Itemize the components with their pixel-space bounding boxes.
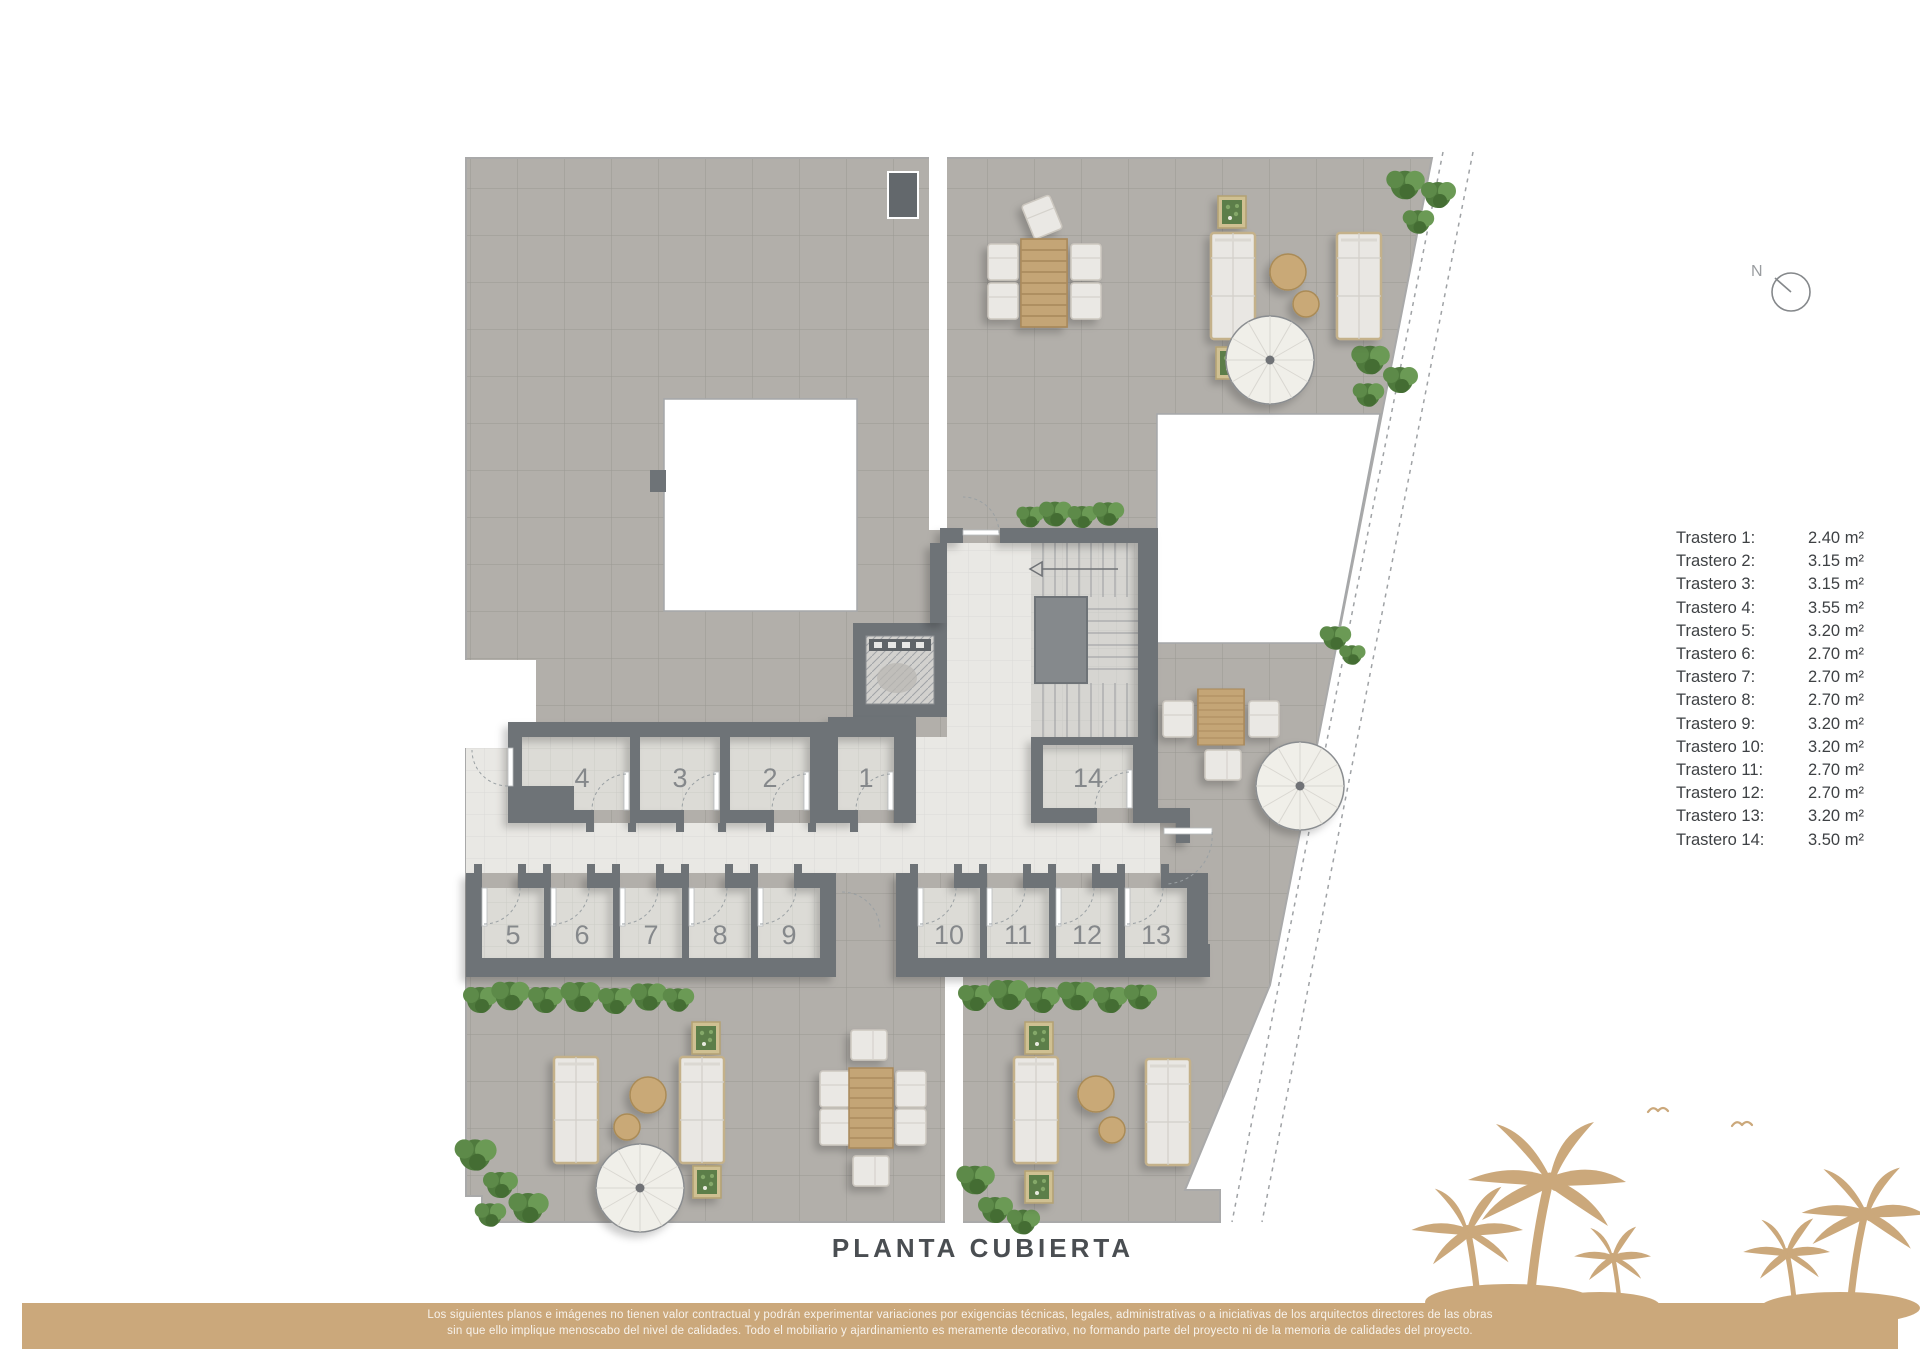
legend-row: Trastero 5:3.20 m² bbox=[1676, 620, 1916, 643]
legend-row: Trastero 9:3.20 m² bbox=[1676, 713, 1916, 736]
legend-value: 3.20 m² bbox=[1808, 736, 1908, 759]
room-label-10: 10 bbox=[934, 920, 964, 950]
elevator bbox=[853, 623, 947, 717]
disclaimer-line-1: Los siguientes planos e imágenes no tien… bbox=[22, 1309, 1898, 1321]
palm-tree-icon bbox=[1411, 1122, 1660, 1320]
bird-icon bbox=[1732, 1122, 1752, 1126]
legend-label: Trastero 14: bbox=[1676, 829, 1808, 852]
parasol-icon bbox=[1256, 742, 1344, 830]
room-label-7: 7 bbox=[643, 920, 658, 950]
legend-row: Trastero 1:2.40 m² bbox=[1676, 527, 1916, 550]
room-label-4: 4 bbox=[574, 763, 589, 793]
legend-label: Trastero 4: bbox=[1676, 597, 1808, 620]
legend-row: Trastero 12:2.70 m² bbox=[1676, 782, 1916, 805]
roof-void-right bbox=[1157, 414, 1380, 643]
room-label-14: 14 bbox=[1073, 763, 1103, 793]
legend-row: Trastero 14:3.50 m² bbox=[1676, 829, 1916, 852]
legend-value: 3.15 m² bbox=[1808, 550, 1908, 573]
legend-row: Trastero 2:3.15 m² bbox=[1676, 550, 1916, 573]
legend-value: 3.20 m² bbox=[1808, 620, 1908, 643]
legend-label: Trastero 7: bbox=[1676, 666, 1808, 689]
legend-label: Trastero 12: bbox=[1676, 782, 1808, 805]
legend-label: Trastero 8: bbox=[1676, 689, 1808, 712]
disclaimer-line-2: sin que ello implique menoscabo del nive… bbox=[22, 1325, 1898, 1337]
legend-row: Trastero 8:2.70 m² bbox=[1676, 689, 1916, 712]
page-title: PLANTA CUBIERTA bbox=[683, 1233, 1283, 1264]
room-label-5: 5 bbox=[505, 920, 520, 950]
legend-label: Trastero 5: bbox=[1676, 620, 1808, 643]
stair-void bbox=[1035, 597, 1087, 683]
legend-label: Trastero 9: bbox=[1676, 713, 1808, 736]
legend-value: 2.70 m² bbox=[1808, 643, 1908, 666]
palm-tree-icon bbox=[1743, 1168, 1920, 1324]
legend-row: Trastero 13:3.20 m² bbox=[1676, 805, 1916, 828]
legend-storage-areas: Trastero 1:2.40 m² Trastero 2:3.15 m² Tr… bbox=[1676, 527, 1916, 852]
legend-row: Trastero 7:2.70 m² bbox=[1676, 666, 1916, 689]
north-arrow-icon bbox=[1745, 255, 1825, 325]
legend-value: 3.20 m² bbox=[1808, 713, 1908, 736]
legend-label: Trastero 10: bbox=[1676, 736, 1808, 759]
legend-value: 3.15 m² bbox=[1808, 573, 1908, 596]
parasol-icon bbox=[1226, 316, 1314, 404]
legend-value: 2.40 m² bbox=[1808, 527, 1908, 550]
room-label-3: 3 bbox=[672, 763, 687, 793]
room-label-8: 8 bbox=[712, 920, 727, 950]
legend-label: Trastero 3: bbox=[1676, 573, 1808, 596]
legend-value: 3.20 m² bbox=[1808, 805, 1908, 828]
legend-value: 2.70 m² bbox=[1808, 782, 1908, 805]
room-label-9: 9 bbox=[781, 920, 796, 950]
legend-row: Trastero 10:3.20 m² bbox=[1676, 736, 1916, 759]
room-label-13: 13 bbox=[1141, 920, 1171, 950]
legend-label: Trastero 11: bbox=[1676, 759, 1808, 782]
roof-void-left bbox=[664, 399, 857, 611]
disclaimer-banner: Los siguientes planos e imágenes no tien… bbox=[22, 1303, 1898, 1349]
chimney bbox=[888, 172, 918, 218]
room-label-2: 2 bbox=[762, 763, 777, 793]
legend-row: Trastero 3:3.15 m² bbox=[1676, 573, 1916, 596]
legend-value: 3.55 m² bbox=[1808, 597, 1908, 620]
legend-row: Trastero 6:2.70 m² bbox=[1676, 643, 1916, 666]
bird-icon bbox=[1648, 1108, 1668, 1112]
legend-value: 3.50 m² bbox=[1808, 829, 1908, 852]
legend-row: Trastero 4:3.55 m² bbox=[1676, 597, 1916, 620]
staircase bbox=[1030, 543, 1138, 737]
legend-value: 2.70 m² bbox=[1808, 759, 1908, 782]
legend-label: Trastero 2: bbox=[1676, 550, 1808, 573]
north-arrow: N bbox=[1745, 255, 1825, 325]
legend-value: 2.70 m² bbox=[1808, 666, 1908, 689]
legend-row: Trastero 11:2.70 m² bbox=[1676, 759, 1916, 782]
room-label-1: 1 bbox=[858, 763, 873, 793]
floor-plan-sheet: 1 2 3 4 5 6 7 8 9 10 11 12 13 14 Traster… bbox=[0, 0, 1920, 1370]
room-label-11: 11 bbox=[1004, 920, 1032, 950]
legend-value: 2.70 m² bbox=[1808, 689, 1908, 712]
room-label-12: 12 bbox=[1072, 920, 1102, 950]
legend-label: Trastero 1: bbox=[1676, 527, 1808, 550]
room-label-6: 6 bbox=[574, 920, 589, 950]
parasol-icon bbox=[596, 1144, 684, 1232]
legend-label: Trastero 13: bbox=[1676, 805, 1808, 828]
legend-label: Trastero 6: bbox=[1676, 643, 1808, 666]
